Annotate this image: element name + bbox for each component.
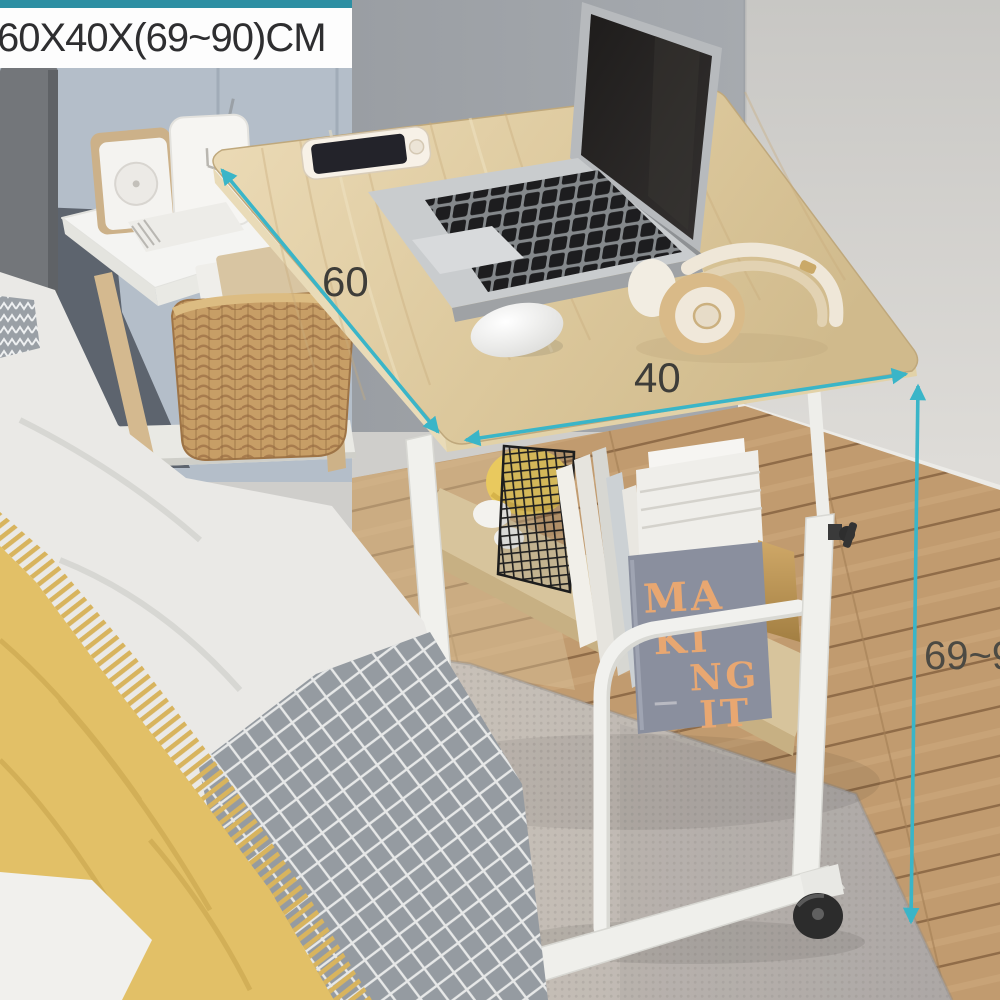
clock-hand bbox=[207, 148, 208, 166]
caster-wheel bbox=[793, 864, 844, 939]
book-title-line: IT bbox=[698, 689, 752, 737]
headboard-edge bbox=[48, 70, 58, 310]
banner-teal-strip bbox=[0, 0, 352, 8]
featured-book: MA KI NG IT bbox=[628, 542, 772, 740]
ear-cup-ring bbox=[694, 304, 720, 328]
basket-ribs bbox=[172, 292, 354, 460]
product-photo: MA KI NG IT bbox=[0, 0, 1000, 1000]
size-banner: 60X40X(69~90)CM bbox=[0, 0, 352, 68]
phone-home-button bbox=[409, 139, 425, 155]
banner-box: 60X40X(69~90)CM bbox=[0, 8, 352, 68]
zigzag-pillow bbox=[0, 296, 40, 358]
depth-dimension-label: 40 bbox=[634, 354, 681, 402]
width-dimension-label: 60 bbox=[322, 258, 369, 306]
banner-size-text: 60X40X(69~90)CM bbox=[0, 16, 326, 61]
caster-hub bbox=[812, 908, 824, 920]
bedroom-scene: MA KI NG IT bbox=[0, 0, 1000, 1000]
height-dimension-label: 69~90 bbox=[924, 634, 1000, 679]
